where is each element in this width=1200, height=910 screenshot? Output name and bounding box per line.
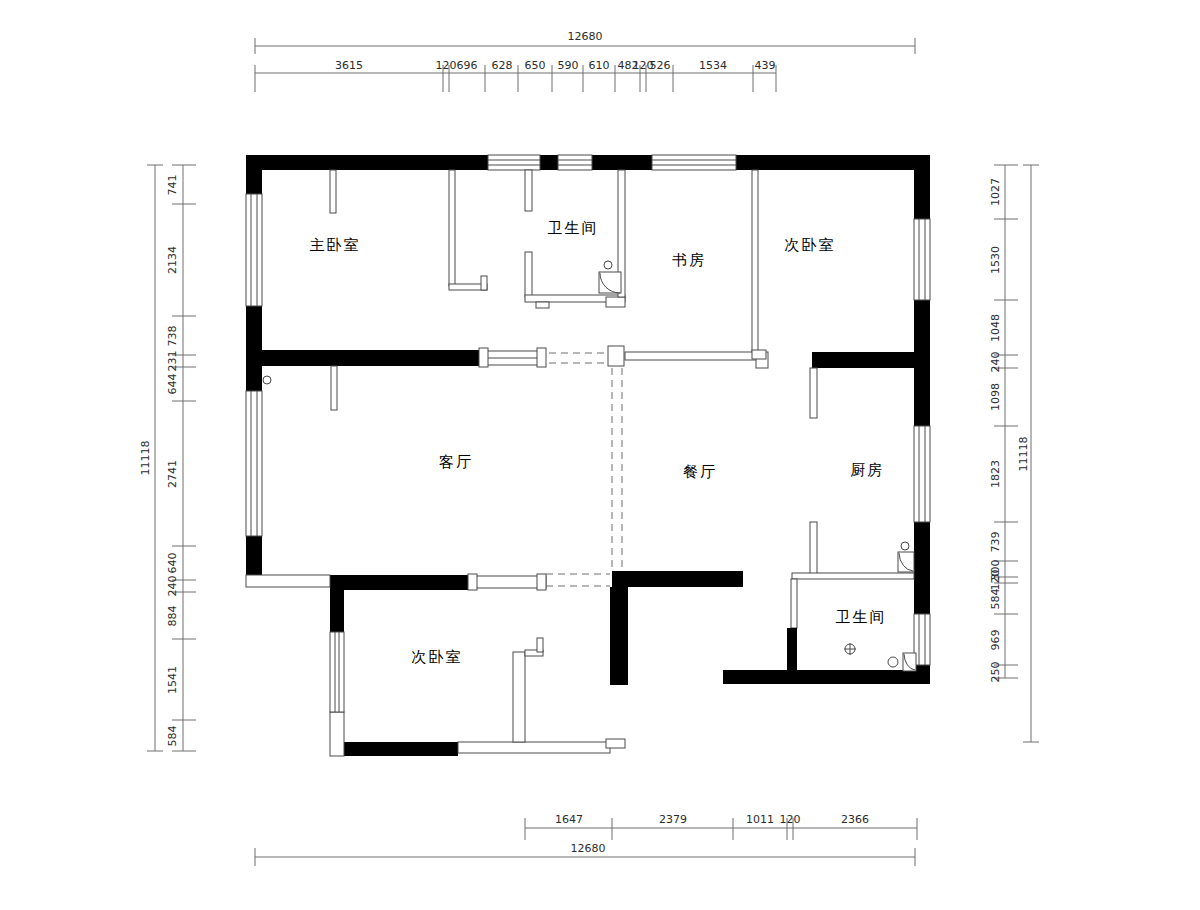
wall-kitchen-west-1 (810, 368, 817, 418)
dim-right-0: 1027 (989, 178, 1002, 206)
dim-bottom-3: 120 (780, 813, 801, 826)
dim-top-total: 12680 (568, 30, 603, 43)
window-right-2 (914, 426, 930, 522)
dim-top-2: 696 (457, 59, 478, 72)
room-label-bathroom-bottom: 卫生间 (836, 608, 887, 626)
dim-right-9: 584 (989, 589, 1002, 610)
room-label-master-bedroom: 主卧室 (310, 236, 361, 254)
wall-jamb-mid (608, 346, 624, 366)
window-top-3 (652, 155, 736, 170)
dimension-top: 12680 3615 120 696 628 650 590 610 482 1… (255, 30, 915, 92)
dim-right-4: 1098 (989, 383, 1002, 411)
dim-right-3: 240 (989, 352, 1002, 373)
dim-right-1: 1530 (989, 246, 1002, 274)
window-left-2 (246, 391, 262, 536)
floor-plan-drawing: 12680 3615 120 696 628 650 590 610 482 1… (0, 0, 1200, 910)
dim-top-9: 526 (650, 59, 671, 72)
room-label-living-room: 客厅 (439, 453, 473, 471)
room-label-dining-room: 餐厅 (683, 463, 717, 481)
wall-stub-master (330, 170, 336, 213)
dim-left-2: 738 (166, 326, 179, 347)
dim-left-0: 741 (166, 175, 179, 196)
dim-right-5: 1823 (989, 460, 1002, 488)
wall-study-right (752, 170, 758, 352)
room-label-study: 书房 (672, 251, 706, 269)
dim-bottom-1: 2379 (659, 813, 687, 826)
wall-master-L (449, 170, 487, 290)
dim-top-5: 590 (558, 59, 579, 72)
window-frame-mid (479, 348, 546, 367)
walls-interior (262, 170, 914, 753)
dim-top-10: 1534 (699, 59, 727, 72)
wall-stub-living (331, 366, 337, 410)
dashed-passage-vertical (612, 368, 622, 572)
dim-top-4: 650 (525, 59, 546, 72)
room-label-kitchen: 厨房 (850, 461, 884, 479)
room-label-bedroom-bottom-left: 次卧室 (412, 648, 463, 666)
room-label-bathroom-top: 卫生间 (548, 219, 599, 237)
dimension-bottom: 1647 2379 1011 120 2366 12680 (255, 813, 917, 866)
dim-bottom-4: 2366 (841, 813, 869, 826)
dimension-right: 11118 1027 1530 1048 240 1098 1823 739 3… (989, 165, 1039, 742)
dim-top-11: 439 (755, 59, 776, 72)
dim-right-10: 969 (989, 630, 1002, 651)
dim-right-total: 11118 (1017, 437, 1030, 472)
wall-entry-c (610, 571, 743, 685)
dim-left-total: 11118 (139, 441, 152, 476)
toilet-bathroom-bottom (888, 653, 916, 671)
marker-living-room (263, 376, 271, 384)
dim-left-3: 231 (166, 351, 179, 372)
dim-right-11: 250 (989, 662, 1002, 683)
dim-left-8: 884 (166, 606, 179, 627)
wall-bedroom-bl-top (330, 575, 470, 590)
dim-right-8: 120 (989, 570, 1002, 591)
dim-bottom-0: 1647 (555, 813, 583, 826)
dashed-passage-bottom (546, 574, 610, 586)
dashed-passage-top (549, 353, 608, 363)
window-right-1 (914, 219, 930, 300)
dim-left-6: 640 (166, 553, 179, 574)
wall-bedroom-bl-left (330, 575, 344, 632)
wall-study-bottom (625, 352, 758, 360)
dim-left-9: 1541 (166, 666, 179, 694)
wall-study-right-foot (752, 350, 766, 359)
dim-bottom-2: 1011 (746, 813, 774, 826)
dim-top-3: 628 (492, 59, 513, 72)
dim-left-7: 240 (166, 576, 179, 597)
sink-kitchen (898, 542, 914, 572)
dim-top-0: 3615 (335, 59, 363, 72)
dashed-openings (546, 353, 622, 586)
dim-top-1: 120 (436, 59, 457, 72)
dim-bottom-total: 12680 (571, 842, 606, 855)
dim-right-6: 739 (989, 532, 1002, 553)
dim-left-5: 2741 (166, 460, 179, 488)
dim-left-10: 584 (166, 726, 179, 747)
walls-bedroom-bl-thin (458, 574, 625, 753)
wall-mid-left (262, 350, 481, 366)
wall-bottom-right (723, 670, 914, 684)
dim-left-1: 2134 (166, 246, 179, 274)
fixtures (263, 261, 916, 671)
wall-bedroom-bl-left-lower (330, 712, 344, 756)
window-left-1 (246, 194, 262, 306)
wall-top (246, 155, 488, 170)
dimension-left: 11118 741 2134 738 231 644 2741 640 240 … (139, 165, 196, 751)
window-top-2 (558, 155, 592, 170)
dim-left-4: 644 (166, 374, 179, 395)
window-bedroom-bl (330, 632, 344, 712)
window-top-1 (488, 155, 540, 170)
wall-bedroom-bl-bottom (344, 742, 458, 756)
drain-bathroom-bottom (844, 643, 856, 655)
wall-kitchen-west-2 (810, 522, 817, 575)
dim-right-2: 1048 (989, 314, 1002, 342)
room-label-bedroom-top-right: 次卧室 (785, 236, 836, 254)
room-labels: 主卧室 卫生间 书房 次卧室 客厅 餐厅 厨房 卫生间 次卧室 (310, 219, 887, 666)
floor-plan-page: 12680 3615 120 696 628 650 590 610 482 1… (0, 0, 1200, 910)
wall-left (246, 155, 262, 194)
dim-top-6: 610 (589, 59, 610, 72)
wall-right (914, 155, 930, 219)
wall-living-corner (246, 575, 330, 587)
wall-mid-right (812, 352, 914, 368)
